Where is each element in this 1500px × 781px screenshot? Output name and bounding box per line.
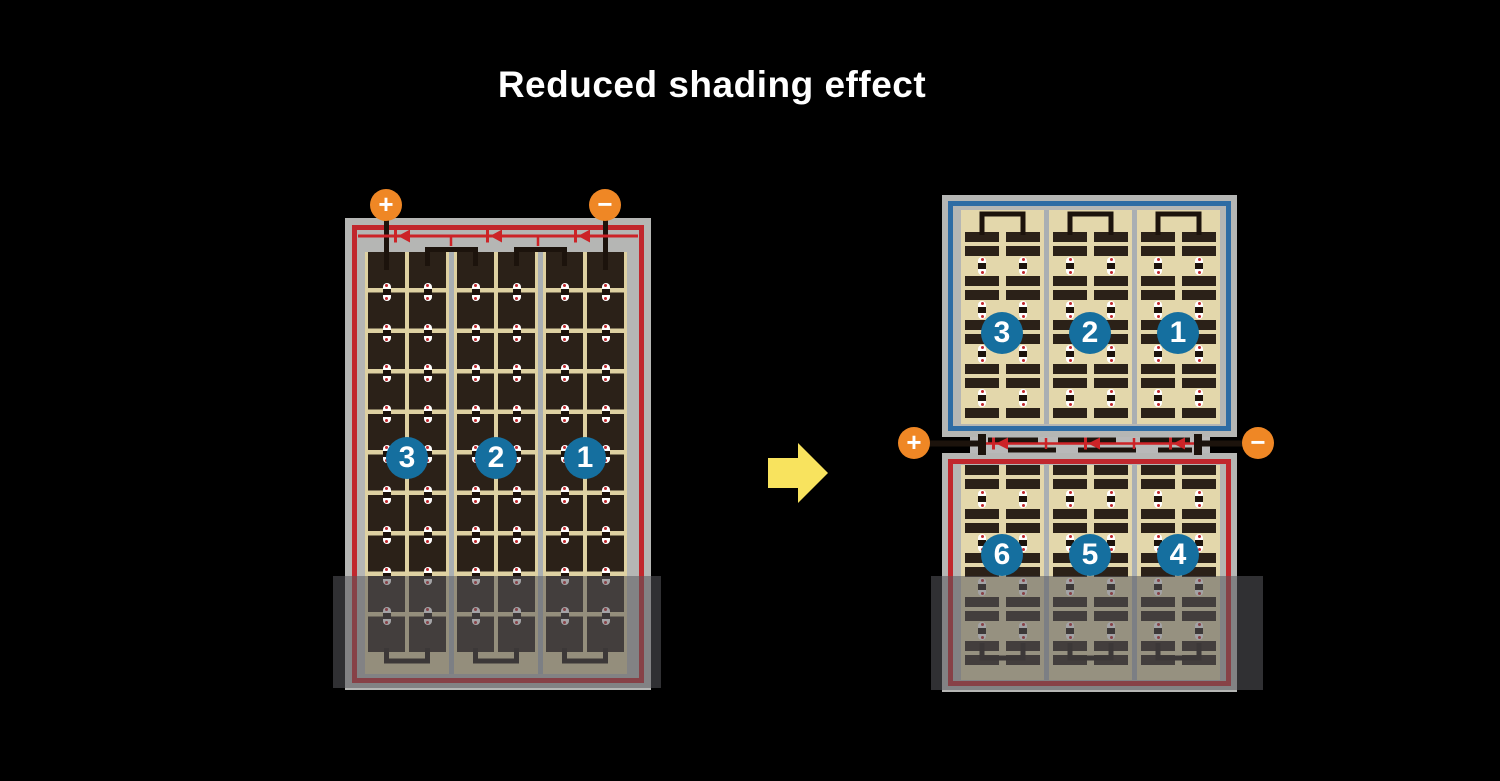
right-top-string-badge-3: 3 — [981, 312, 1023, 354]
cell-connector-dot — [1154, 301, 1162, 319]
diagram-title: Reduced shading effect — [0, 64, 1424, 106]
cell-connector-dot — [1107, 490, 1115, 508]
top-jumper-wires — [982, 214, 1199, 235]
cell-connector-dot — [383, 283, 391, 301]
left-negative-terminal: − — [589, 189, 621, 221]
cell-connector-dot — [472, 324, 480, 342]
left-string-badge-2: 2 — [475, 437, 517, 479]
cell-connector-dot — [1154, 389, 1162, 407]
cell-connector-dot — [1066, 301, 1074, 319]
cell-connector-dot — [1107, 345, 1115, 363]
cell-connector-dot — [424, 486, 432, 504]
cell-connector-dot — [383, 405, 391, 423]
cell-connector-dot — [561, 364, 569, 382]
cell-connector-dot — [561, 324, 569, 342]
cell-connector-dot — [1019, 345, 1027, 363]
cell-connector-dot — [424, 283, 432, 301]
cell-connector-dot — [561, 283, 569, 301]
cell-connector-dot — [424, 526, 432, 544]
cell-connector-dot — [424, 364, 432, 382]
cell-connector-dot — [978, 389, 986, 407]
cell-connector-dot — [561, 405, 569, 423]
cell-connector-dot — [383, 324, 391, 342]
cell-connector-dot — [513, 405, 521, 423]
cell-connector-dot — [602, 405, 610, 423]
right-bottom-string-badge-4: 4 — [1157, 534, 1199, 576]
cell-connector-dot — [383, 364, 391, 382]
cell-connector-dot — [383, 526, 391, 544]
cell-connector-dot — [561, 526, 569, 544]
arrow-right-icon — [768, 443, 828, 503]
cell-connector-dot — [602, 364, 610, 382]
cell-connector-dot — [1066, 345, 1074, 363]
left-positive-terminal: + — [370, 189, 402, 221]
cell-connector-dot — [1019, 301, 1027, 319]
cell-connector-dot — [513, 526, 521, 544]
cell-connector-dot — [1195, 345, 1203, 363]
diode-bus-wire — [358, 230, 638, 247]
cell-connector-dot — [424, 405, 432, 423]
cell-connector-dot — [1195, 301, 1203, 319]
cell-connector-dot — [513, 486, 521, 504]
cell-connector-dot — [1019, 389, 1027, 407]
cell-connector-dot — [472, 364, 480, 382]
right-top-string-badge-1: 1 — [1157, 312, 1199, 354]
shading-overlay-left — [333, 576, 661, 688]
cell-connector-dot — [561, 486, 569, 504]
cell-connector-dot — [1154, 345, 1162, 363]
cell-connector-dot — [602, 283, 610, 301]
cell-connector-dot — [1066, 490, 1074, 508]
cell-connector-dot — [424, 324, 432, 342]
cell-connector-dot — [513, 324, 521, 342]
cell-connector-dot — [1107, 257, 1115, 275]
cell-connector-dot — [1066, 257, 1074, 275]
right-negative-terminal: − — [1242, 427, 1274, 459]
left-string-badge-1: 1 — [564, 437, 606, 479]
cell-connector-dot — [472, 526, 480, 544]
cell-connector-dot — [1107, 389, 1115, 407]
cell-connector-dot — [978, 345, 986, 363]
cell-connector-dot — [1195, 490, 1203, 508]
module-junction-wiring — [900, 425, 1290, 470]
cell-connector-dot — [602, 486, 610, 504]
right-top-string-badge-2: 2 — [1069, 312, 1111, 354]
cell-connector-dot — [472, 486, 480, 504]
right-bottom-string-badge-5: 5 — [1069, 534, 1111, 576]
cell-connector-dot — [1107, 301, 1115, 319]
cell-connector-dot — [1019, 257, 1027, 275]
string-jumper-wires — [428, 250, 565, 267]
cell-connector-dot — [978, 490, 986, 508]
cell-connector-dot — [978, 257, 986, 275]
right-positive-terminal: + — [898, 427, 930, 459]
cell-connector-dot — [513, 283, 521, 301]
cell-connector-dot — [1019, 490, 1027, 508]
cell-connector-dot — [472, 405, 480, 423]
cell-connector-dot — [472, 283, 480, 301]
left-string-badge-3: 3 — [386, 437, 428, 479]
diagram-canvas: Reduced shading effect — [0, 0, 1500, 781]
cell-connector-dot — [513, 364, 521, 382]
right-bottom-string-badge-6: 6 — [981, 534, 1023, 576]
cell-connector-dot — [383, 486, 391, 504]
cell-connector-dot — [1066, 389, 1074, 407]
cell-connector-dot — [1154, 490, 1162, 508]
shading-overlay-right — [931, 576, 1263, 690]
cell-connector-dot — [1154, 257, 1162, 275]
cell-connector-dot — [978, 301, 986, 319]
cell-connector-dot — [1195, 257, 1203, 275]
cell-connector-dot — [1195, 389, 1203, 407]
cell-connector-dot — [602, 324, 610, 342]
cell-connector-dot — [602, 526, 610, 544]
